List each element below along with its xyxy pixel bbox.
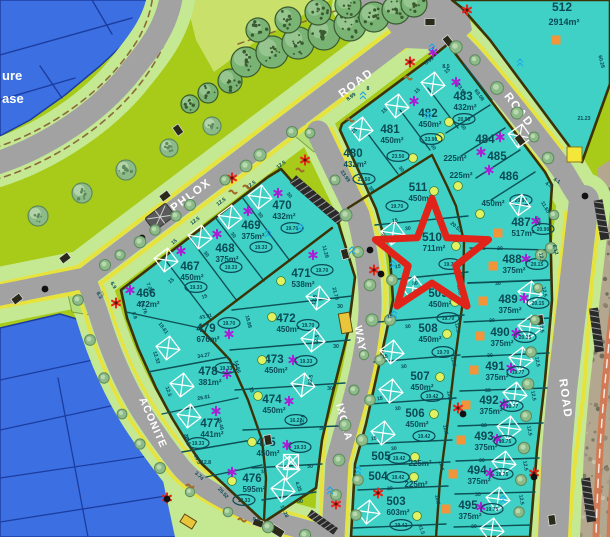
svg-text:19.33: 19.33 [225,265,238,271]
svg-text:484: 484 [475,134,495,146]
svg-text:19.42: 19.42 [395,523,408,529]
svg-text:23.90: 23.90 [425,137,438,143]
svg-text:8.5: 8.5 [442,64,449,70]
svg-text:19.77: 19.77 [506,404,519,410]
svg-text:603m²: 603m² [386,508,409,517]
svg-text:20.15: 20.15 [519,335,532,341]
svg-text:375m²: 375m² [485,373,508,382]
svg-text:450m²: 450m² [262,406,285,415]
svg-text:225m²: 225m² [404,480,427,489]
svg-text:488: 488 [502,254,522,266]
svg-text:432m²: 432m² [343,160,366,169]
svg-text:595m²: 595m² [242,485,265,494]
svg-text:489: 489 [498,294,517,306]
svg-text:375m²: 375m² [502,266,525,275]
svg-text:19.33: 19.33 [192,441,205,447]
svg-text:676m²: 676m² [196,335,219,344]
svg-text:493: 493 [474,431,493,443]
svg-text:450m²: 450m² [418,335,441,344]
svg-text:480: 480 [343,148,362,160]
svg-text:12.8: 12.8 [201,460,211,466]
svg-text:375m²: 375m² [241,232,264,241]
svg-text:15: 15 [392,218,399,225]
svg-text:503: 503 [386,496,405,508]
svg-text:19.42: 19.42 [426,394,439,400]
svg-text:474: 474 [262,394,282,406]
svg-text:467: 467 [180,261,199,273]
svg-text:19.42: 19.42 [393,456,406,462]
svg-text:450m²: 450m² [418,120,441,129]
svg-text:491: 491 [485,361,505,373]
svg-text:476: 476 [242,473,261,485]
svg-text:441m²: 441m² [200,430,223,439]
svg-text:30: 30 [405,324,411,330]
svg-text:481: 481 [380,124,400,136]
svg-text:472: 472 [276,313,295,325]
svg-text:30: 30 [401,364,407,370]
svg-text:510: 510 [422,230,442,244]
svg-text:19.70: 19.70 [316,268,329,274]
svg-text:19.70: 19.70 [437,350,450,356]
svg-text:511: 511 [409,182,428,194]
svg-text:470: 470 [272,200,291,212]
svg-text:506: 506 [405,408,424,420]
svg-text:495: 495 [458,500,478,512]
svg-text:375m²: 375m² [490,339,513,348]
svg-text:ase: ase [2,91,24,106]
svg-text:20.90: 20.90 [458,117,471,123]
svg-text:19.75: 19.75 [496,472,509,478]
svg-text:473: 473 [264,354,283,366]
svg-text:711m²: 711m² [423,244,446,253]
svg-text:15: 15 [371,436,378,443]
svg-text:21.23: 21.23 [578,116,591,122]
svg-text:432m²: 432m² [453,103,476,112]
svg-text:19.33: 19.33 [220,366,233,372]
svg-text:30: 30 [307,464,313,470]
svg-text:30: 30 [319,426,325,432]
svg-text:19.33: 19.33 [294,445,307,451]
svg-text:8: 8 [367,86,370,92]
svg-text:30: 30 [495,281,501,287]
svg-text:19.33: 19.33 [190,285,203,291]
svg-text:20.90: 20.90 [537,227,550,233]
svg-text:23.50: 23.50 [392,154,405,160]
svg-text:492: 492 [479,395,498,407]
svg-text:30: 30 [395,406,401,412]
svg-text:225m²: 225m² [408,459,431,468]
svg-text:375m²: 375m² [474,443,497,452]
svg-text:2914m²: 2914m² [548,17,579,27]
svg-text:8.5: 8.5 [252,516,260,523]
svg-text:19.33: 19.33 [255,245,268,251]
svg-text:30: 30 [479,458,485,464]
svg-text:19.42: 19.42 [418,434,431,440]
svg-text:30: 30 [391,446,397,452]
svg-text:450m²: 450m² [380,136,403,145]
svg-text:19.70: 19.70 [223,321,236,327]
svg-text:538m²: 538m² [291,280,314,289]
svg-text:490: 490 [490,327,509,339]
svg-text:225m²: 225m² [443,154,466,163]
svg-text:375m²: 375m² [215,255,238,264]
svg-text:19.33: 19.33 [238,498,251,504]
svg-text:15: 15 [382,354,389,361]
svg-text:504: 504 [368,471,388,483]
svg-text:30: 30 [405,226,411,232]
svg-text:19.75: 19.75 [499,439,512,445]
svg-text:486: 486 [499,171,518,183]
svg-text:375m²: 375m² [467,477,490,486]
svg-text:30: 30 [475,492,481,498]
svg-text:450m²: 450m² [256,449,279,458]
svg-text:468: 468 [215,243,235,255]
svg-text:20.15: 20.15 [532,301,545,307]
svg-text:30: 30 [487,353,493,359]
svg-text:479: 479 [196,323,215,335]
svg-text:450m²: 450m² [405,420,428,429]
svg-text:30: 30 [489,318,495,324]
svg-text:21.50: 21.50 [358,177,371,183]
svg-text:19.33: 19.33 [300,359,313,365]
svg-text:375m²: 375m² [458,512,481,521]
svg-text:507: 507 [410,371,429,383]
svg-text:30: 30 [497,246,503,252]
svg-text:30: 30 [412,281,418,287]
svg-text:512: 512 [552,0,572,14]
svg-text:517m²: 517m² [511,229,534,238]
svg-text:450m²: 450m² [481,199,504,208]
svg-text:19.42: 19.42 [392,475,405,481]
svg-text:30: 30 [481,423,487,429]
svg-text:19.75: 19.75 [486,507,499,513]
svg-text:375m²: 375m² [479,407,502,416]
svg-text:30: 30 [327,386,333,392]
svg-text:30: 30 [471,524,477,530]
svg-text:471: 471 [291,268,311,280]
svg-text:30: 30 [337,304,343,310]
svg-text:494: 494 [467,465,487,477]
svg-text:469: 469 [241,220,260,232]
svg-text:19.77: 19.77 [512,370,525,376]
svg-text:30: 30 [387,486,393,492]
svg-text:432m²: 432m² [272,212,295,221]
svg-text:19.70: 19.70 [302,323,315,329]
svg-text:450m²: 450m² [264,366,287,375]
svg-text:508: 508 [418,323,438,335]
svg-text:482: 482 [418,108,437,120]
svg-text:ure: ure [2,68,22,83]
svg-text:485: 485 [487,151,507,163]
svg-text:15: 15 [377,396,384,403]
svg-text:450m²: 450m² [180,273,203,282]
svg-text:30: 30 [297,499,303,505]
svg-text:19.70: 19.70 [391,204,404,210]
svg-text:450m²: 450m² [428,300,451,309]
svg-text:30: 30 [485,388,491,394]
svg-text:375m²: 375m² [498,306,521,315]
svg-text:487: 487 [511,217,530,229]
svg-text:225m²: 225m² [449,171,472,180]
svg-text:19.70: 19.70 [442,316,455,322]
svg-text:30: 30 [333,344,339,350]
svg-text:450m²: 450m² [276,325,299,334]
svg-text:30: 30 [261,469,268,476]
svg-text:19.70: 19.70 [286,226,299,232]
svg-text:381m²: 381m² [198,378,221,387]
